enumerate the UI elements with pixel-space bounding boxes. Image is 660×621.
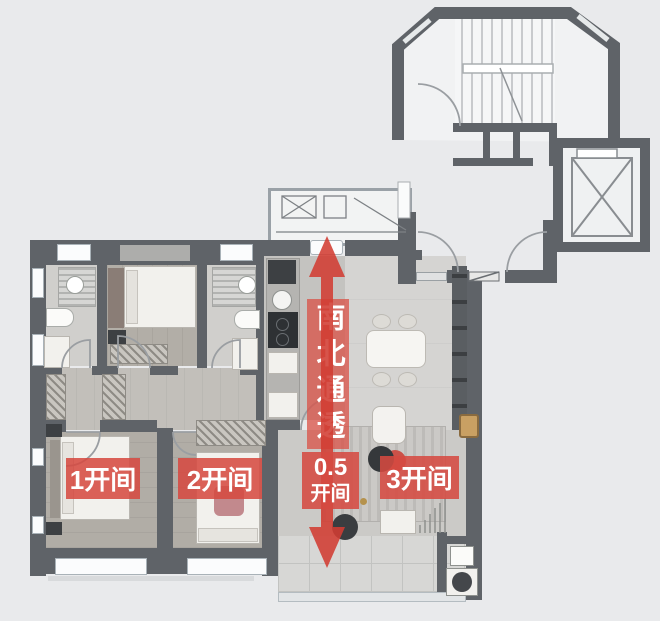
wall xyxy=(150,366,178,375)
wall xyxy=(97,256,107,368)
armchair xyxy=(372,406,406,444)
master-nightstand xyxy=(108,330,126,344)
bay-label-05-unit: 开间 xyxy=(311,481,351,507)
nightstand xyxy=(46,522,62,535)
bed2-pillow xyxy=(198,528,258,542)
window xyxy=(220,244,253,261)
bay-label-3: 3开间 xyxy=(380,456,459,499)
equipment-platform xyxy=(268,188,412,246)
balcony-window xyxy=(278,592,466,602)
duct-wall xyxy=(549,123,557,166)
dining-chair xyxy=(398,314,417,329)
bed1-headboard xyxy=(50,440,60,518)
window xyxy=(32,334,44,366)
nightstand xyxy=(46,424,62,437)
duct-wall xyxy=(483,130,490,162)
stair-handrail xyxy=(463,64,553,73)
window-sill xyxy=(48,576,254,581)
elevator-x xyxy=(572,158,632,236)
toilet xyxy=(46,308,74,327)
wall xyxy=(543,220,557,283)
entry-threshold xyxy=(416,272,447,281)
window xyxy=(32,448,44,466)
ns-ventilation-band: 南北通透 xyxy=(307,299,349,449)
wall-panel-icon xyxy=(459,414,479,438)
wall xyxy=(256,240,310,256)
floor-lamp xyxy=(360,498,367,505)
master-bench xyxy=(110,344,168,364)
bay-label-2: 2开间 xyxy=(178,458,262,499)
bay-label-2-text: 2开间 xyxy=(187,460,253,497)
bay-label-1: 1开间 xyxy=(66,458,140,499)
coffee-table xyxy=(380,510,416,534)
wall xyxy=(398,250,422,260)
kitchen-sink xyxy=(272,290,292,310)
closet xyxy=(46,374,66,420)
kitchen-pass-window xyxy=(310,240,343,255)
duct-wall xyxy=(513,130,520,162)
fridge xyxy=(268,260,296,284)
floor-plan-canvas: 南北通透 1开间 2开间 0.5 开间 3开间 xyxy=(0,0,660,621)
wall xyxy=(197,256,207,368)
wall xyxy=(345,240,398,256)
kitchen-cabinet xyxy=(268,392,298,418)
wall xyxy=(264,420,300,430)
stair-direction-line xyxy=(500,68,522,121)
master-headboard xyxy=(108,268,124,328)
wardrobe xyxy=(196,420,266,446)
elevator-x xyxy=(572,158,632,236)
master-pillow xyxy=(126,270,138,324)
elevator-car xyxy=(572,158,632,236)
dining-chair xyxy=(372,314,391,329)
wall xyxy=(447,536,482,544)
sink-basin xyxy=(238,276,256,294)
chamfer-window xyxy=(578,16,608,40)
stairwell-outline xyxy=(398,13,614,142)
duct-wall xyxy=(453,158,533,166)
bay-label-3-text: 3开间 xyxy=(386,459,452,496)
shower-stall xyxy=(232,338,258,370)
washing-machine-drum xyxy=(452,572,472,592)
laundry-sink xyxy=(450,546,474,566)
entry-door-symbol-line xyxy=(469,272,499,281)
bay-window-sill xyxy=(120,245,190,261)
elevator-panel xyxy=(577,149,617,158)
window xyxy=(32,516,44,534)
burner xyxy=(276,318,289,331)
window xyxy=(187,558,267,575)
dining-chair xyxy=(372,372,391,387)
chamfer-window xyxy=(404,20,430,42)
stair-treads xyxy=(462,16,552,123)
wall xyxy=(157,428,173,550)
wall xyxy=(453,123,557,132)
window xyxy=(57,244,91,261)
oven xyxy=(268,352,298,374)
bay-label-05-number: 0.5 xyxy=(314,455,347,481)
round-side-table xyxy=(332,514,358,540)
dining-chair xyxy=(398,372,417,387)
bay-label-05: 0.5 开间 xyxy=(302,452,359,509)
bay-label-1-text: 1开间 xyxy=(70,460,136,497)
sideboard-cabinet xyxy=(452,266,467,430)
shower-stall xyxy=(44,336,70,368)
sink-basin xyxy=(66,276,84,294)
window xyxy=(32,268,44,298)
ns-ventilation-text: 南北通透 xyxy=(307,302,349,446)
dining-table xyxy=(366,330,426,368)
toilet xyxy=(234,310,260,329)
window xyxy=(55,558,147,575)
closet xyxy=(102,374,126,420)
entry-door-symbol xyxy=(469,272,499,281)
wall xyxy=(100,420,157,432)
burner xyxy=(276,333,289,346)
stairwell-floor xyxy=(398,13,614,142)
elevator-shaft xyxy=(558,143,645,247)
stair-flight xyxy=(455,14,555,124)
